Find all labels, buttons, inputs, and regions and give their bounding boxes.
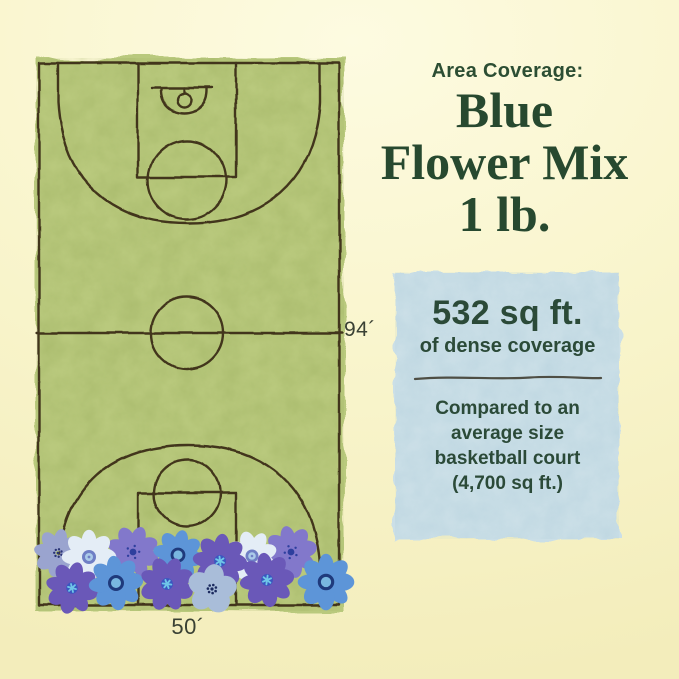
coverage-stat-value: 532 sq ft. [384, 294, 631, 333]
coverage-stat-caption: of dense coverage [384, 335, 631, 358]
info-box-content: 532 sq ft. of dense coverage Compared to… [384, 262, 631, 496]
product-title: Blue Flower Mix 1 lb. [330, 84, 679, 240]
product-title-line2: Flower Mix [330, 136, 679, 188]
court-width-label: 50´ [138, 614, 238, 640]
coverage-info-box: 532 sq ft. of dense coverage Compared to… [384, 262, 631, 551]
court-length-label: 94´ [344, 318, 376, 342]
comparison-line1: Compared to an [384, 396, 631, 421]
hand-drawn-divider [410, 373, 606, 383]
area-coverage-label: Area Coverage: [340, 60, 675, 83]
product-title-line1: Blue [330, 84, 679, 136]
comparison-line4: (4,700 sq ft.) [384, 471, 631, 496]
infographic-canvas: 94´ 50´ Area Coverage: Blue Flower Mix 1… [0, 0, 679, 679]
basketball-court-illustration [0, 0, 380, 660]
flower-icon [298, 554, 355, 611]
comparison-line3: basketball court [384, 446, 631, 471]
comparison-line2: average size [384, 421, 631, 446]
product-title-line3: 1 lb. [330, 188, 679, 240]
comparison-text: Compared to an average size basketball c… [384, 396, 631, 496]
